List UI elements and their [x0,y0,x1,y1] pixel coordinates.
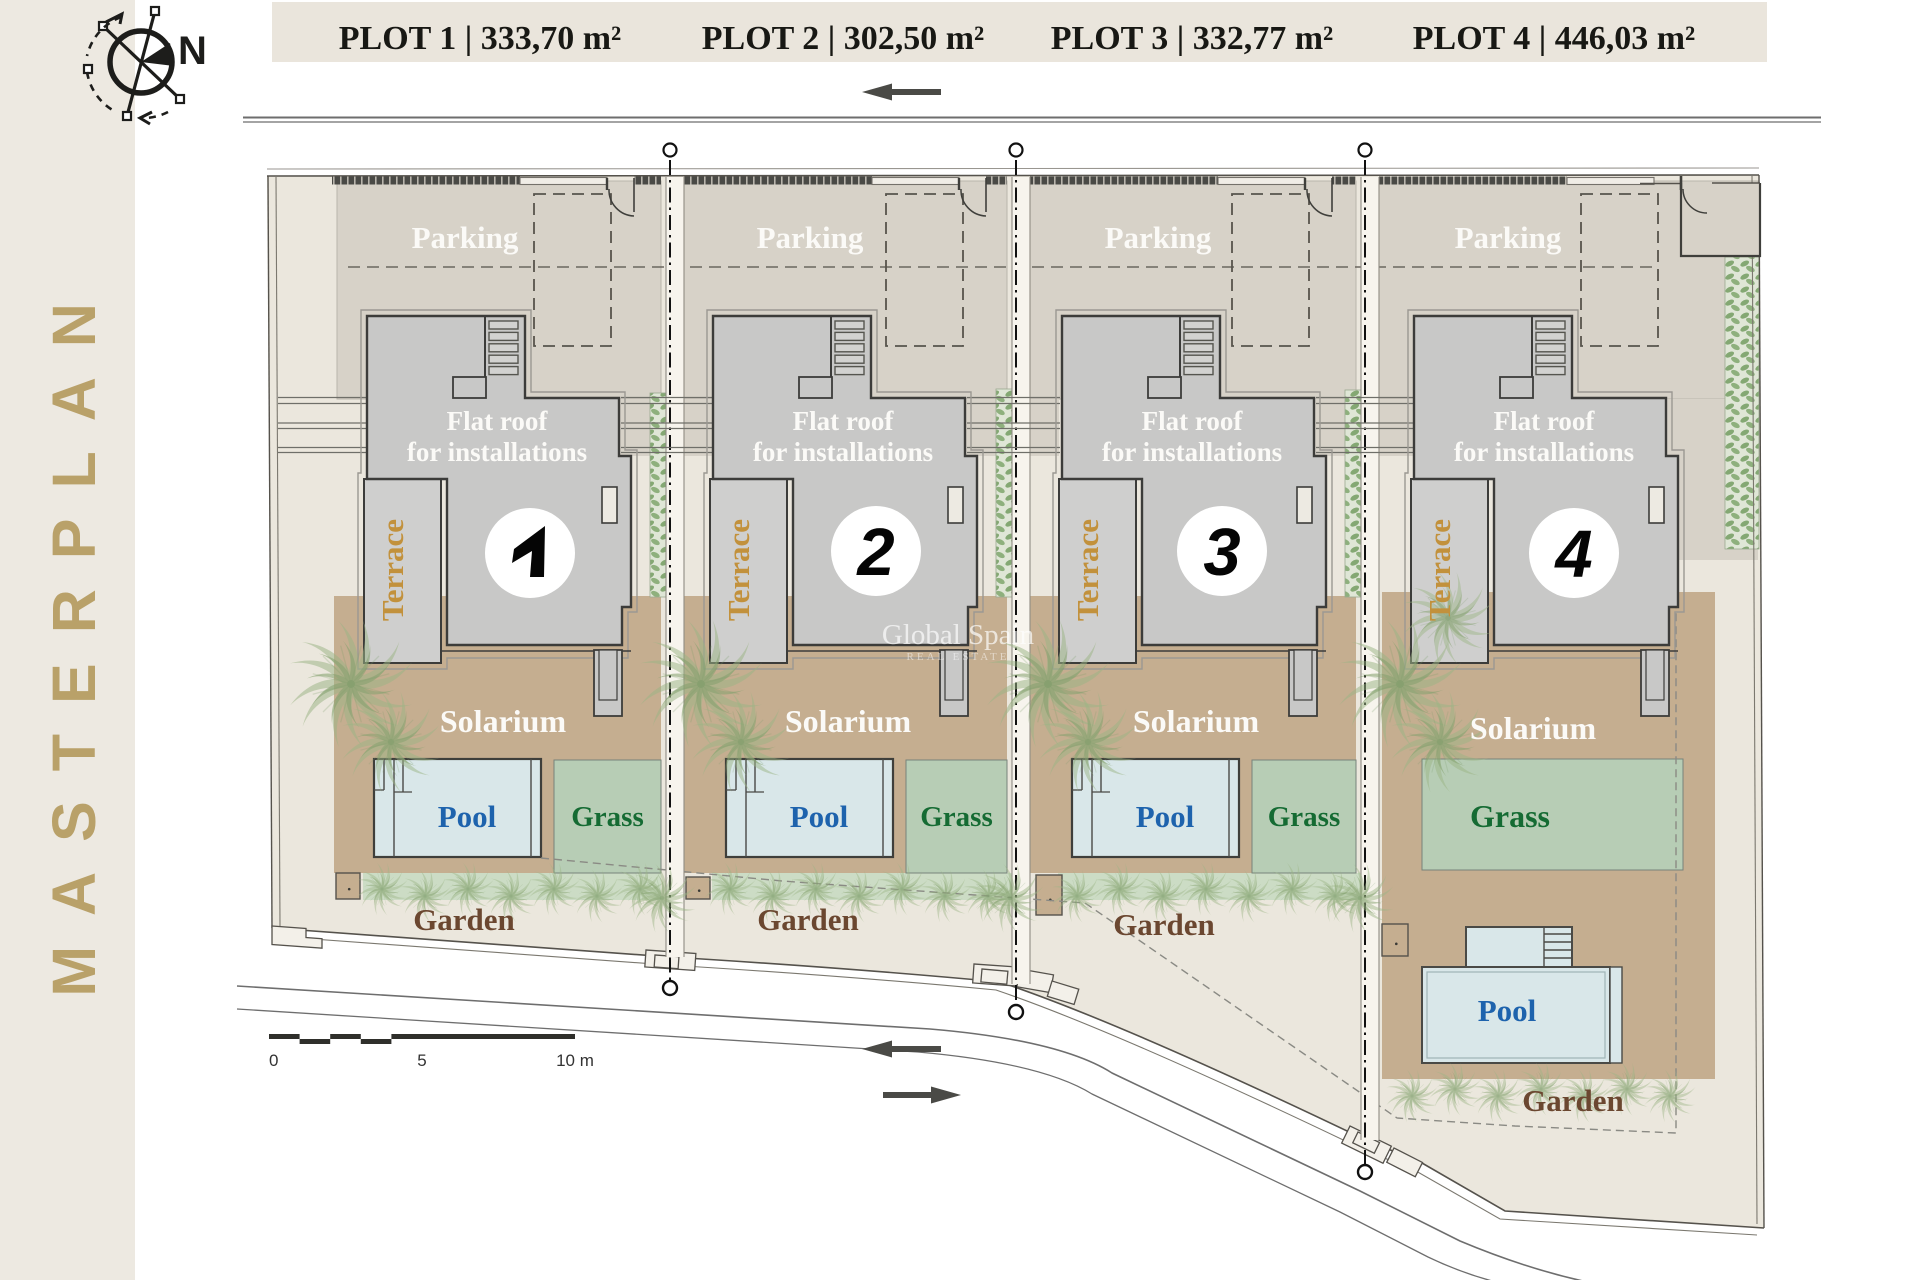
svg-text:Terrace: Terrace [375,519,410,621]
svg-text:Flat roof: Flat roof [793,406,895,436]
svg-text:Garden: Garden [1522,1083,1624,1118]
svg-text:Pool: Pool [790,799,849,834]
svg-text:REAL ESTATE: REAL ESTATE [907,651,1010,663]
svg-text:Solarium: Solarium [785,703,912,739]
svg-text:3: 3 [1203,515,1240,590]
svg-text:PLOT 1 | 333,70 m²: PLOT 1 | 333,70 m² [339,20,621,57]
svg-text:Parking: Parking [1455,220,1562,255]
svg-text:Garden: Garden [1113,907,1215,942]
svg-text:Pool: Pool [1478,993,1537,1028]
svg-text:PLOT 3 | 332,77 m²: PLOT 3 | 332,77 m² [1051,20,1333,57]
svg-text:10 m: 10 m [556,1051,594,1070]
svg-text:Solarium: Solarium [1133,703,1260,739]
svg-text:4: 4 [1553,517,1592,592]
svg-text:Terrace: Terrace [721,519,756,621]
svg-text:PLOT 2 | 302,50 m²: PLOT 2 | 302,50 m² [702,20,984,57]
svg-text:for installations: for installations [1454,437,1634,467]
svg-text:Pool: Pool [438,799,497,834]
svg-text:Garden: Garden [757,902,859,937]
svg-text:Grass: Grass [1268,801,1341,833]
svg-text:for installations: for installations [407,437,587,467]
svg-text:Global Spain: Global Spain [882,619,1035,651]
svg-text:Grass: Grass [1470,798,1550,834]
svg-text:Flat roof: Flat roof [1142,406,1244,436]
svg-text:Garden: Garden [413,902,515,937]
svg-text:Parking: Parking [412,220,519,255]
svg-text:5: 5 [417,1051,426,1070]
svg-text:Terrace: Terrace [1422,519,1457,621]
svg-text:N: N [178,29,207,73]
svg-text:0: 0 [269,1051,278,1070]
svg-text:Flat roof: Flat roof [447,406,549,436]
svg-text:MASTERPLAN: MASTERPLAN [40,273,108,997]
svg-text:Flat roof: Flat roof [1494,406,1596,436]
svg-text:Terrace: Terrace [1070,519,1105,621]
svg-text:PLOT 4 | 446,03 m²: PLOT 4 | 446,03 m² [1413,20,1695,57]
svg-text:Grass: Grass [920,801,993,833]
svg-text:Grass: Grass [571,801,644,833]
svg-text:2: 2 [855,515,894,590]
svg-text:for installations: for installations [753,437,933,467]
svg-text:Parking: Parking [757,220,864,255]
svg-text:for installations: for installations [1102,437,1282,467]
svg-text:Solarium: Solarium [440,703,567,739]
svg-text:Pool: Pool [1136,799,1195,834]
svg-text:Parking: Parking [1105,220,1212,255]
svg-text:Solarium: Solarium [1470,710,1597,746]
